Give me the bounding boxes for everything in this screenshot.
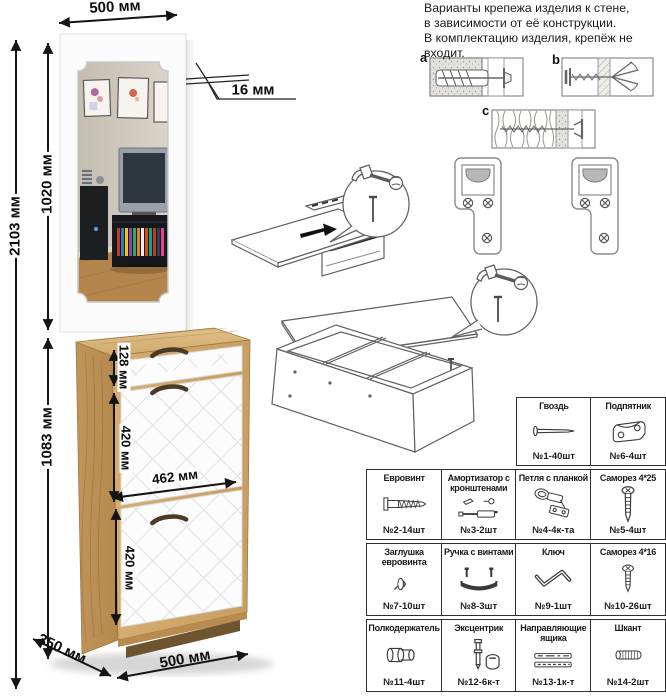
variant-a-label: a bbox=[420, 50, 427, 65]
cam-lock-icon bbox=[448, 633, 510, 677]
parts-row-2: Евровинт №2-14шт Амортизатор с кронштена… bbox=[366, 469, 666, 540]
assembly-sheet: Варианты крепежа изделия к стене, в зави… bbox=[0, 0, 666, 700]
part-cell: Подпятник №6-4шт bbox=[590, 397, 666, 466]
dowel-icon bbox=[597, 633, 659, 677]
drawer-slides-icon bbox=[522, 643, 584, 677]
part-qty: №5-4шт bbox=[609, 525, 646, 539]
part-name: Гвоздь bbox=[538, 398, 570, 411]
part-name: Ручка с винтами bbox=[443, 544, 514, 557]
shelf-pin-icon bbox=[373, 633, 435, 677]
part-cell: Амортизатор с кронштенами №3-2шт bbox=[441, 469, 517, 540]
part-qty: №4-4к-та bbox=[532, 525, 574, 539]
part-cell: Евровинт №2-14шт bbox=[366, 469, 442, 540]
parts-row-4: Полкодержатель №11-4шт Эксцентрик №12- bbox=[366, 619, 666, 692]
dim-top-width: 500 мм bbox=[87, 0, 143, 16]
part-qty: №10-26шт bbox=[604, 601, 651, 615]
dim-cabinet-height: 1083 мм bbox=[40, 405, 55, 469]
confirmat-icon bbox=[373, 483, 435, 525]
part-cell: Петля с планкой №4-4к-та bbox=[515, 469, 591, 540]
wall-mount-note: Варианты крепежа изделия к стене, в зави… bbox=[424, 1, 664, 61]
gas-strut-icon bbox=[448, 493, 510, 525]
picture-frames bbox=[83, 78, 170, 122]
part-name: Заглушка евровинта bbox=[367, 544, 441, 567]
part-qty: №8-3шт bbox=[460, 601, 497, 615]
part-cell: Ручка с винтами №8-3шт bbox=[441, 543, 517, 616]
parts-table: Гвоздь №1-40шт Подпятник №6-4шт Евровинт bbox=[366, 397, 666, 695]
part-qty: №2-14шт bbox=[383, 525, 425, 539]
part-qty: №14-2шт bbox=[607, 677, 649, 691]
part-cell: Направляющие ящика №13-1к-т bbox=[515, 619, 591, 692]
part-name: Эксцентрик bbox=[453, 620, 504, 633]
handle-icon bbox=[448, 557, 510, 601]
part-name: Ключ bbox=[541, 544, 566, 557]
part-qty: №6-4шт bbox=[610, 451, 647, 465]
part-name: Саморез 4*16 bbox=[599, 544, 657, 557]
part-cell: Гвоздь №1-40шт bbox=[516, 397, 592, 466]
part-qty: №3-2шт bbox=[460, 525, 497, 539]
part-name: Подпятник bbox=[604, 398, 651, 411]
part-qty: №9-1шт bbox=[535, 601, 572, 615]
note-line: В комплектацию изделия, крепёж не bbox=[424, 31, 664, 46]
wall-mount-variant-b bbox=[562, 58, 653, 96]
note-line: входит. bbox=[424, 46, 664, 61]
part-cell: Саморез 4*16 №10-26шт bbox=[590, 543, 666, 616]
part-name: Направляющие ящика bbox=[516, 620, 590, 643]
variant-c-label: c bbox=[482, 103, 489, 118]
part-name: Петля с планкой bbox=[518, 470, 589, 483]
part-cell: Эксцентрик №12-6к-т bbox=[441, 619, 517, 692]
hinge-icon bbox=[522, 483, 584, 525]
dim-flap1-height: 420 мм bbox=[120, 424, 133, 473]
hex-key-icon bbox=[522, 557, 584, 601]
part-name: Полкодержатель bbox=[367, 620, 440, 633]
parts-row-3: Заглушка евровинта №7-10шт Ручка с винта… bbox=[366, 543, 666, 616]
cap-icon bbox=[373, 567, 435, 601]
part-cell: Заглушка евровинта №7-10шт bbox=[366, 543, 442, 616]
wall-mount-variant-a bbox=[430, 58, 523, 96]
part-name: Евровинт bbox=[383, 470, 426, 483]
mounting-bracket-left bbox=[455, 158, 501, 254]
assembly-step-1 bbox=[232, 165, 409, 276]
note-line: в зависимости от её конструкции. bbox=[424, 16, 664, 31]
part-cell: Полкодержатель №11-4шт bbox=[366, 619, 442, 692]
part-name: Шкант bbox=[613, 620, 642, 633]
screw-icon bbox=[597, 483, 659, 525]
parts-row-1: Гвоздь №1-40шт Подпятник №6-4шт bbox=[516, 397, 666, 466]
mirror-panel bbox=[60, 34, 195, 332]
part-cell: Шкант №14-2шт bbox=[590, 619, 666, 692]
part-cell: Саморез 4*25 №5-4шт bbox=[590, 469, 666, 540]
part-name: Амортизатор с кронштенами bbox=[442, 470, 516, 493]
part-name: Саморез 4*25 bbox=[599, 470, 657, 483]
dim-thickness: 16 мм bbox=[229, 83, 276, 98]
dim-drawer-height: 128 мм bbox=[118, 343, 131, 392]
part-cell: Ключ №9-1шт bbox=[515, 543, 591, 616]
part-qty: №12-6к-т bbox=[458, 677, 500, 691]
glide-icon bbox=[597, 411, 659, 451]
cabinet bbox=[50, 328, 274, 675]
part-qty: №11-4шт bbox=[383, 677, 425, 691]
part-qty: №7-10шт bbox=[383, 601, 425, 615]
dim-flap2-height: 420 мм bbox=[124, 544, 137, 593]
dim-mirror-height: 1020 мм bbox=[40, 152, 55, 216]
mounting-bracket-right bbox=[572, 158, 618, 254]
part-qty: №13-1к-т bbox=[532, 677, 574, 691]
dim-total-height: 2103 мм bbox=[8, 194, 23, 258]
nail-icon bbox=[523, 411, 585, 451]
part-qty: №1-40шт bbox=[533, 451, 575, 465]
screw-icon bbox=[597, 557, 659, 601]
wall-mount-variant-c bbox=[492, 110, 595, 148]
variant-b-label: b bbox=[552, 52, 560, 67]
note-line: Варианты крепежа изделия к стене, bbox=[424, 1, 664, 16]
mirror-reflection bbox=[78, 62, 170, 302]
